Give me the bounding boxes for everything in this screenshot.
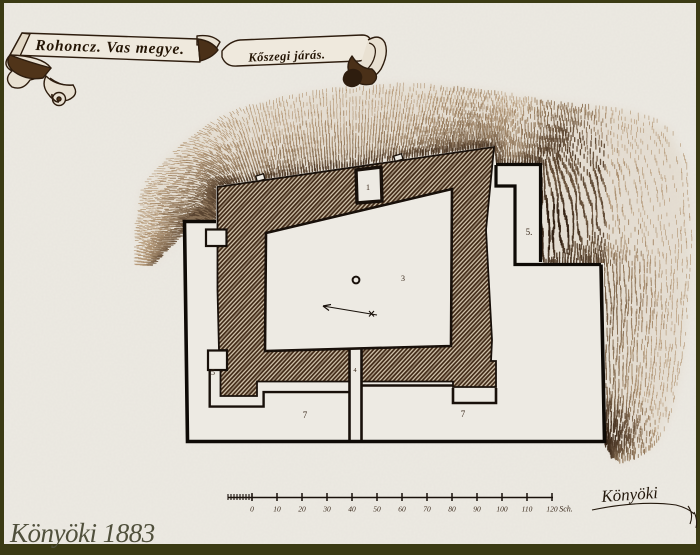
svg-text:110: 110: [522, 505, 533, 514]
svg-text:30: 30: [322, 505, 331, 514]
svg-text:3: 3: [401, 274, 405, 283]
svg-text:120: 120: [546, 505, 558, 514]
svg-text:60: 60: [398, 505, 406, 514]
svg-text:7: 7: [461, 409, 466, 419]
svg-text:100: 100: [496, 505, 508, 514]
svg-text:Sch.: Sch.: [559, 505, 573, 514]
svg-text:40: 40: [348, 505, 356, 514]
svg-text:Könyöki: Könyöki: [600, 483, 659, 506]
svg-text:0: 0: [250, 505, 254, 514]
svg-text:20: 20: [298, 505, 306, 514]
svg-text:1: 1: [366, 183, 370, 192]
svg-text:5: 5: [211, 368, 215, 377]
svg-text:7: 7: [303, 410, 308, 420]
svg-text:10: 10: [273, 505, 281, 514]
svg-text:90: 90: [473, 505, 481, 514]
svg-text:Könyöki 1883: Könyöki 1883: [9, 518, 155, 548]
svg-text:5.: 5.: [526, 227, 533, 237]
svg-text:70: 70: [423, 505, 431, 514]
svg-text:50: 50: [373, 505, 381, 514]
svg-text:80: 80: [448, 505, 456, 514]
